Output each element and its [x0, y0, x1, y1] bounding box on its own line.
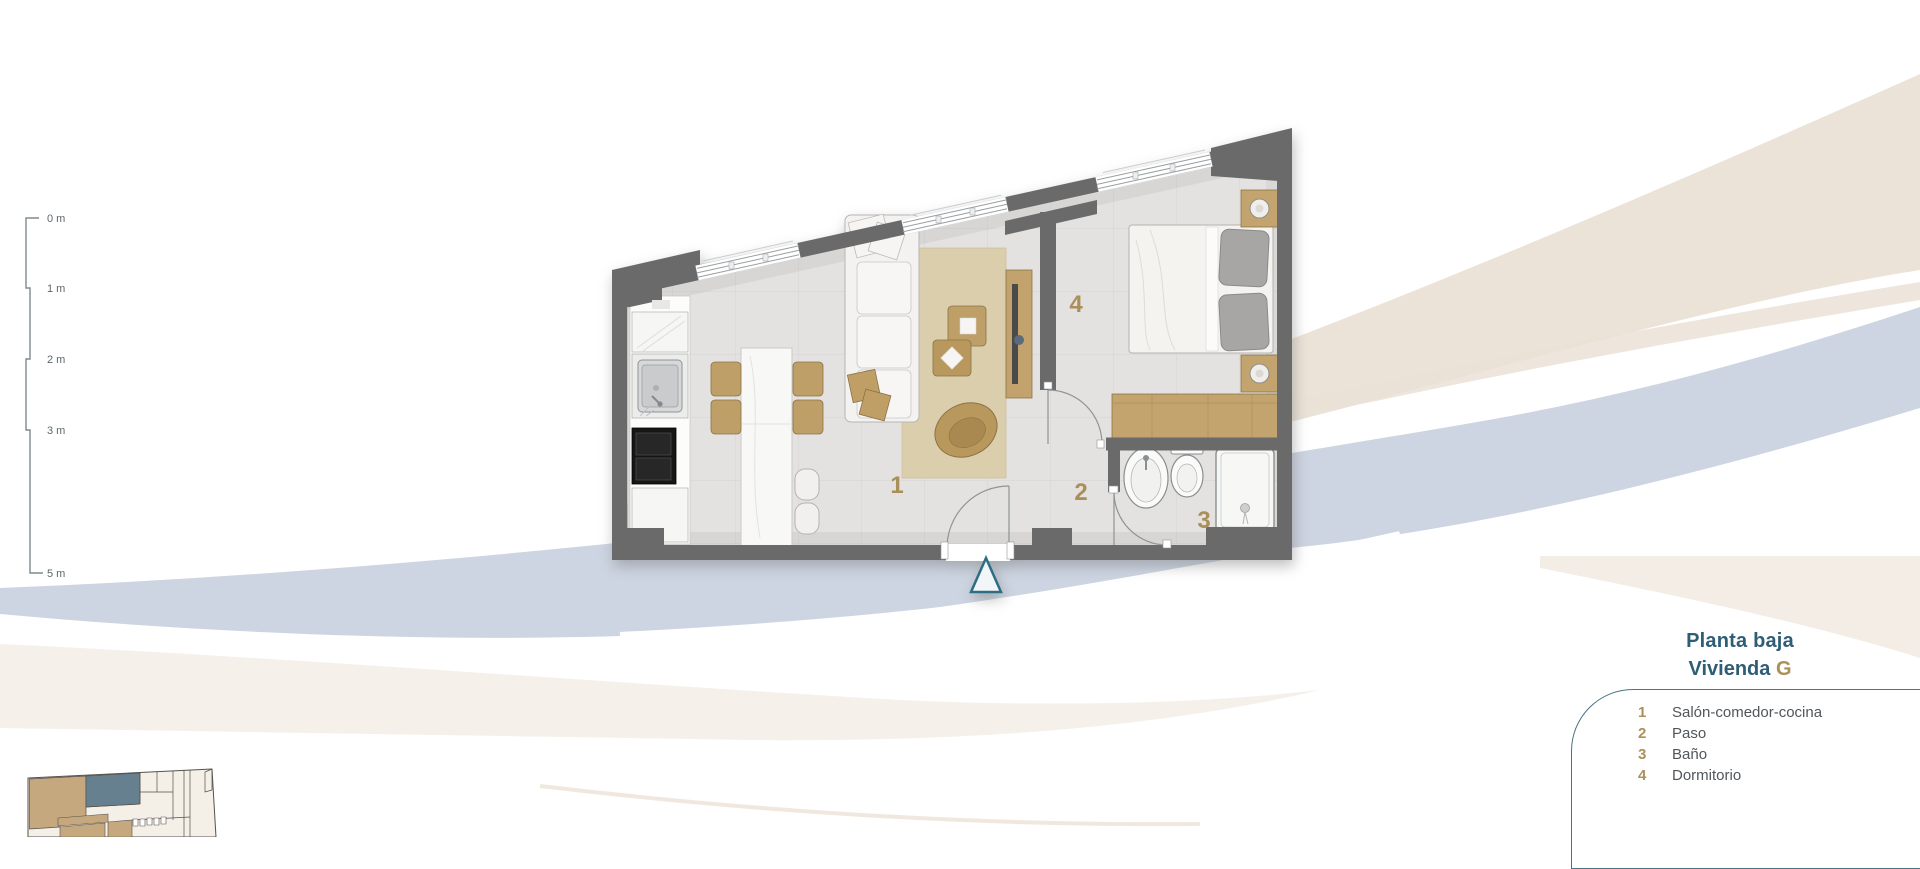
wardrobe: [1112, 394, 1280, 440]
scale-ruler-line: [26, 218, 43, 573]
cooktop: [632, 428, 676, 484]
legend-label: Paso: [1672, 723, 1706, 744]
mini-locator-plan: [28, 769, 216, 837]
tv-sideboard: [1006, 270, 1032, 398]
unit-title: Vivienda G: [1565, 655, 1915, 683]
floor-plan: 1 2 3 4: [612, 128, 1292, 592]
nightstand-top: [1241, 190, 1278, 227]
wall-chunk-bottomleft: [612, 528, 664, 558]
plan-title-block: Planta baja Vivienda G: [1565, 627, 1915, 683]
floor-title: Planta baja: [1565, 627, 1915, 655]
fridge: [632, 312, 688, 352]
scale-ruler-labels: 0 m 1 m 2 m 3 m 5 m: [47, 213, 65, 580]
scale-label-0m: 0 m: [47, 213, 65, 225]
bed: [1129, 225, 1273, 353]
wave-beige-faint-arc: [540, 786, 1200, 824]
kitchen-counter: [630, 296, 690, 544]
scale-label-2m: 2 m: [47, 354, 65, 366]
room-number-salon: 1: [890, 472, 903, 499]
scale-label-3m: 3 m: [47, 425, 65, 437]
scale-label-1m: 1 m: [47, 283, 65, 295]
legend-label: Dormitorio: [1672, 765, 1741, 786]
wall-chunk-hall: [1032, 528, 1072, 558]
legend-label: Salón-comedor-cocina: [1672, 702, 1822, 723]
unit-letter: G: [1776, 658, 1792, 680]
shower-tray: [1216, 448, 1274, 532]
bathroom-sink: [1124, 448, 1168, 508]
wall-chunk-bathroom: [1206, 527, 1286, 558]
pillow: [1219, 293, 1270, 351]
scale-ruler: 0 m 1 m 2 m 3 m 5 m: [26, 213, 65, 580]
corner-notch: [652, 300, 670, 309]
brochure-page: { "title": { "floor": "Planta baja", "un…: [0, 0, 1920, 837]
wall-corner-topright: [1211, 128, 1292, 182]
bedroom: [1112, 190, 1280, 440]
legend-item-bano: 3 Baño: [1572, 744, 1920, 765]
legend-number: 1: [1638, 702, 1672, 723]
legend-label: Baño: [1672, 744, 1707, 765]
legend-item-paso: 2 Paso: [1572, 723, 1920, 744]
pillow: [1219, 229, 1270, 287]
mini-unit-tan-bottom2: [108, 820, 132, 837]
tv-screen: [1012, 284, 1018, 384]
room-number-bano: 3: [1197, 507, 1210, 534]
scale-label-5m: 5 m: [47, 568, 65, 580]
unit-title-prefix: Vivienda: [1688, 658, 1770, 680]
wave-beige-lower-field: [0, 644, 1320, 740]
dining-island: [741, 348, 792, 546]
legend-box: 1 Salón-comedor-cocina 2 Paso 3 Baño 4 D…: [1571, 689, 1920, 869]
legend-number: 4: [1638, 765, 1672, 786]
room-number-paso: 2: [1074, 479, 1087, 506]
nightstand-bottom: [1241, 355, 1278, 392]
mini-unit-highlighted: [86, 773, 140, 807]
legend-item-salon: 1 Salón-comedor-cocina: [1572, 702, 1920, 723]
legend-number: 3: [1638, 744, 1672, 765]
speaker-dot: [1014, 335, 1024, 345]
legend-item-dormitorio: 4 Dormitorio: [1572, 765, 1920, 786]
legend-number: 2: [1638, 723, 1672, 744]
room-number-dormitorio: 4: [1069, 291, 1083, 318]
kitchen-sink: [632, 354, 688, 418]
